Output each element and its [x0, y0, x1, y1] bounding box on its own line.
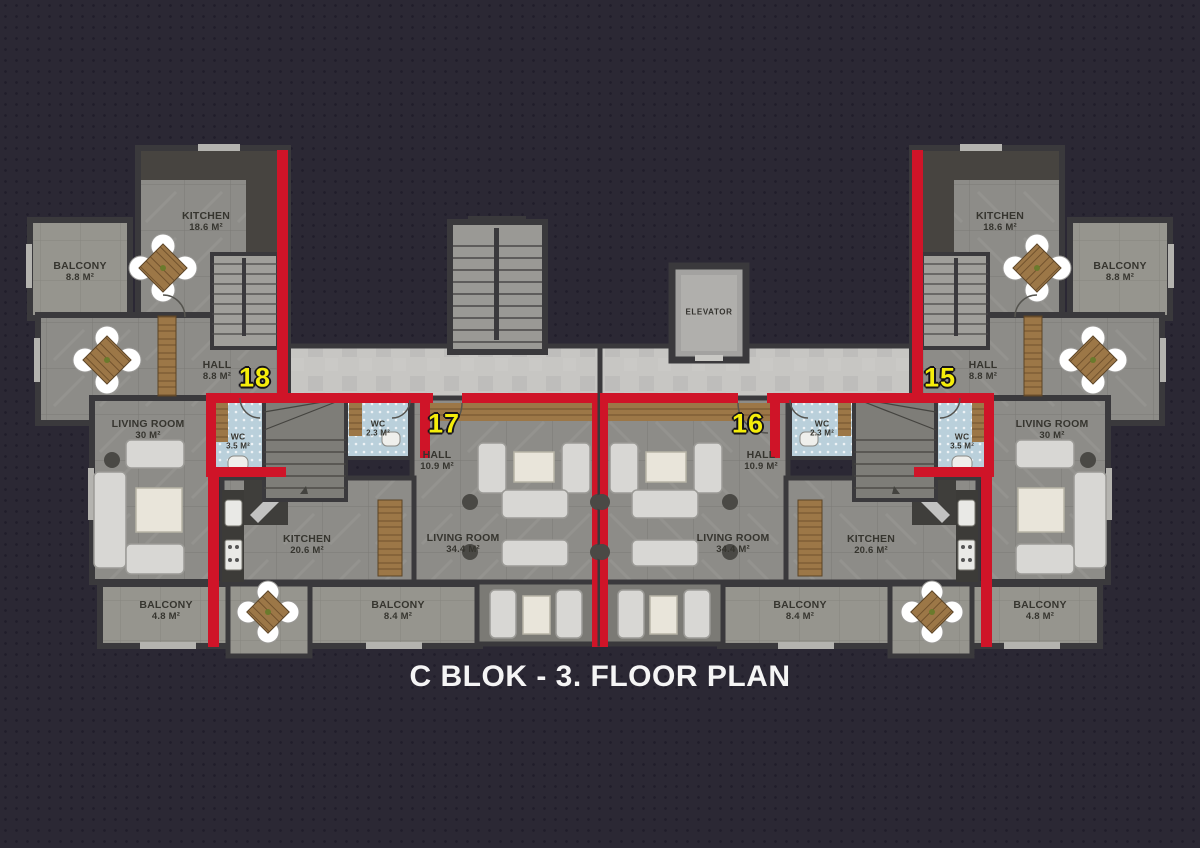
- central-stairwell: [450, 216, 545, 352]
- floor-plan-page: KITCHEN18.6 M² KITCHEN18.6 M² BALCONY8.8…: [0, 0, 1200, 848]
- floor-plan-canvas: [0, 0, 1200, 848]
- elevator-shaft: [672, 266, 746, 361]
